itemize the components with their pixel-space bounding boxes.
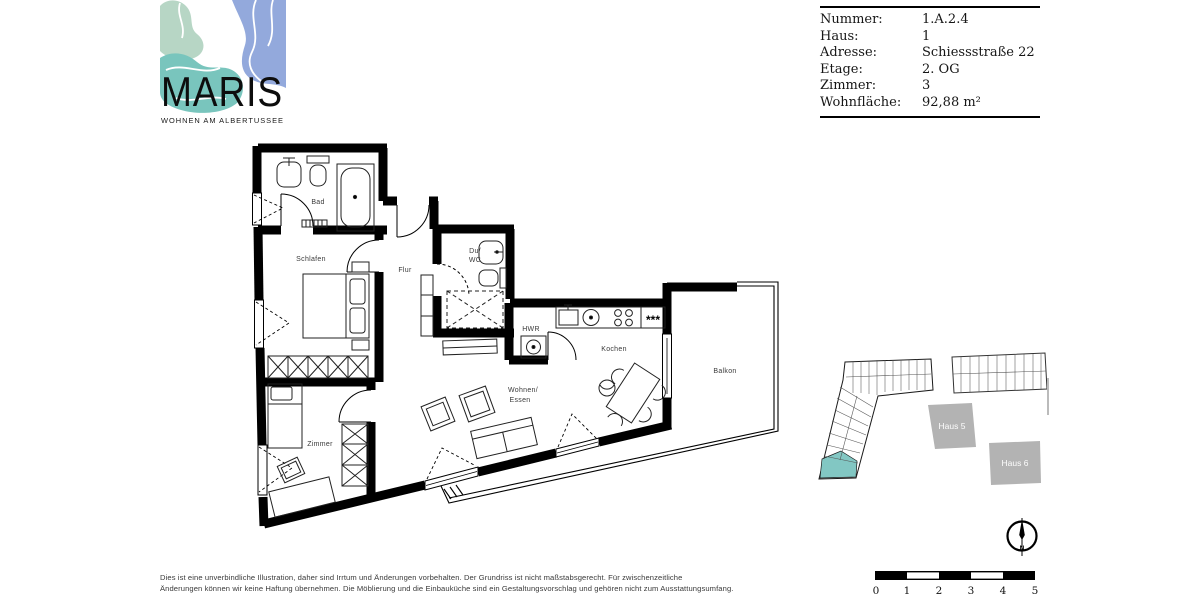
scale-tick-2: 2 <box>936 585 943 597</box>
duwc-toilet <box>479 268 506 288</box>
disclaimer-line-2: Änderungen können wir keine Haftung über… <box>160 583 840 594</box>
label-hwr: HWR <box>522 326 540 333</box>
bad-sink <box>277 158 301 187</box>
label-wohnen-1: Wohnen/ <box>508 387 538 394</box>
entry-door <box>397 205 429 237</box>
duwc-shower <box>447 291 503 328</box>
scale-tick-5: 5 <box>1032 585 1039 597</box>
door-zimmer <box>339 390 371 422</box>
label-haus5: Haus 5 <box>939 421 966 431</box>
scale-tick-0: 0 <box>873 585 880 597</box>
label-duwc-2: WC <box>469 257 481 264</box>
schlafen-bed <box>303 262 369 350</box>
scale-tick-3: 3 <box>968 585 975 597</box>
label-bad: Bad <box>311 199 324 206</box>
page: MARIS WOHNEN AM ALBERTUSSEE Nummer: 1.A.… <box>0 0 1200 600</box>
door-hwr <box>548 332 576 360</box>
label-schlafen: Schlafen <box>296 256 326 263</box>
scale-tick-1: 1 <box>904 585 911 597</box>
label-kochen: Kochen <box>601 346 627 353</box>
label-zimmer: Zimmer <box>307 441 333 448</box>
window-schlafen <box>255 300 264 348</box>
disclaimer-line-1: Dies ist eine unverbindliche Illustratio… <box>160 572 840 583</box>
scale-tick-4: 4 <box>1000 585 1007 597</box>
dining-chair-round <box>599 380 615 396</box>
armchair-2 <box>459 386 495 422</box>
compass-north-label: N <box>1020 545 1025 552</box>
compass-north-icon: N <box>1008 518 1037 556</box>
windows <box>253 193 672 495</box>
scale-bar: 0 1 2 3 4 5 <box>873 571 1039 597</box>
door-bad <box>281 194 313 226</box>
label-balkon: Balkon <box>713 368 736 375</box>
window-zimmer <box>258 445 267 495</box>
fridge-stars-icon: *** <box>646 313 660 327</box>
disclaimer: Dies ist eine unverbindliche Illustratio… <box>160 572 840 594</box>
bad-toilet <box>307 156 329 186</box>
schlafen-wardrobe <box>268 356 368 378</box>
duwc-sink <box>479 241 503 264</box>
flur-wardrobe <box>421 275 433 336</box>
hwr-washer <box>521 336 546 358</box>
zimmer-shelf <box>342 424 368 486</box>
floorplan-drawing: *** Bad Schlafen Flur Du/ WC HWR Kochen … <box>0 0 1200 600</box>
bad-bathtub <box>337 164 374 231</box>
label-wohnen-2: Essen <box>510 397 531 404</box>
label-flur: Flur <box>398 267 412 274</box>
zimmer-chair <box>277 457 305 483</box>
site-plan: Haus 5 Haus 6 <box>819 353 1048 485</box>
sofa <box>471 417 538 458</box>
label-duwc-1: Du/ <box>469 248 481 255</box>
armchair-1 <box>421 397 455 431</box>
zimmer-bed <box>268 384 302 448</box>
label-haus6: Haus 6 <box>1002 458 1029 468</box>
sideboard <box>443 339 497 355</box>
